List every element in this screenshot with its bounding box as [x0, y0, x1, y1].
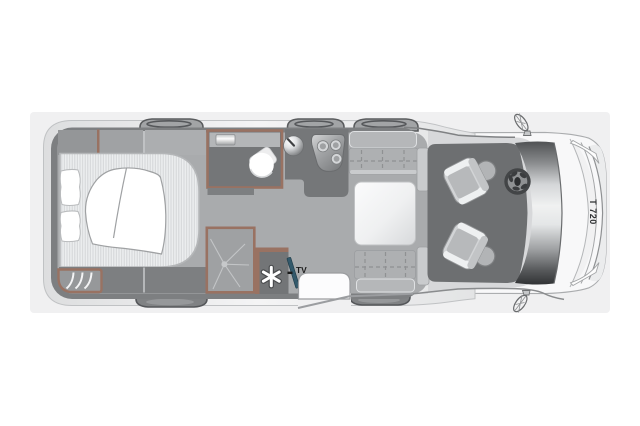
- svg-text:T 720: T 720: [588, 199, 598, 225]
